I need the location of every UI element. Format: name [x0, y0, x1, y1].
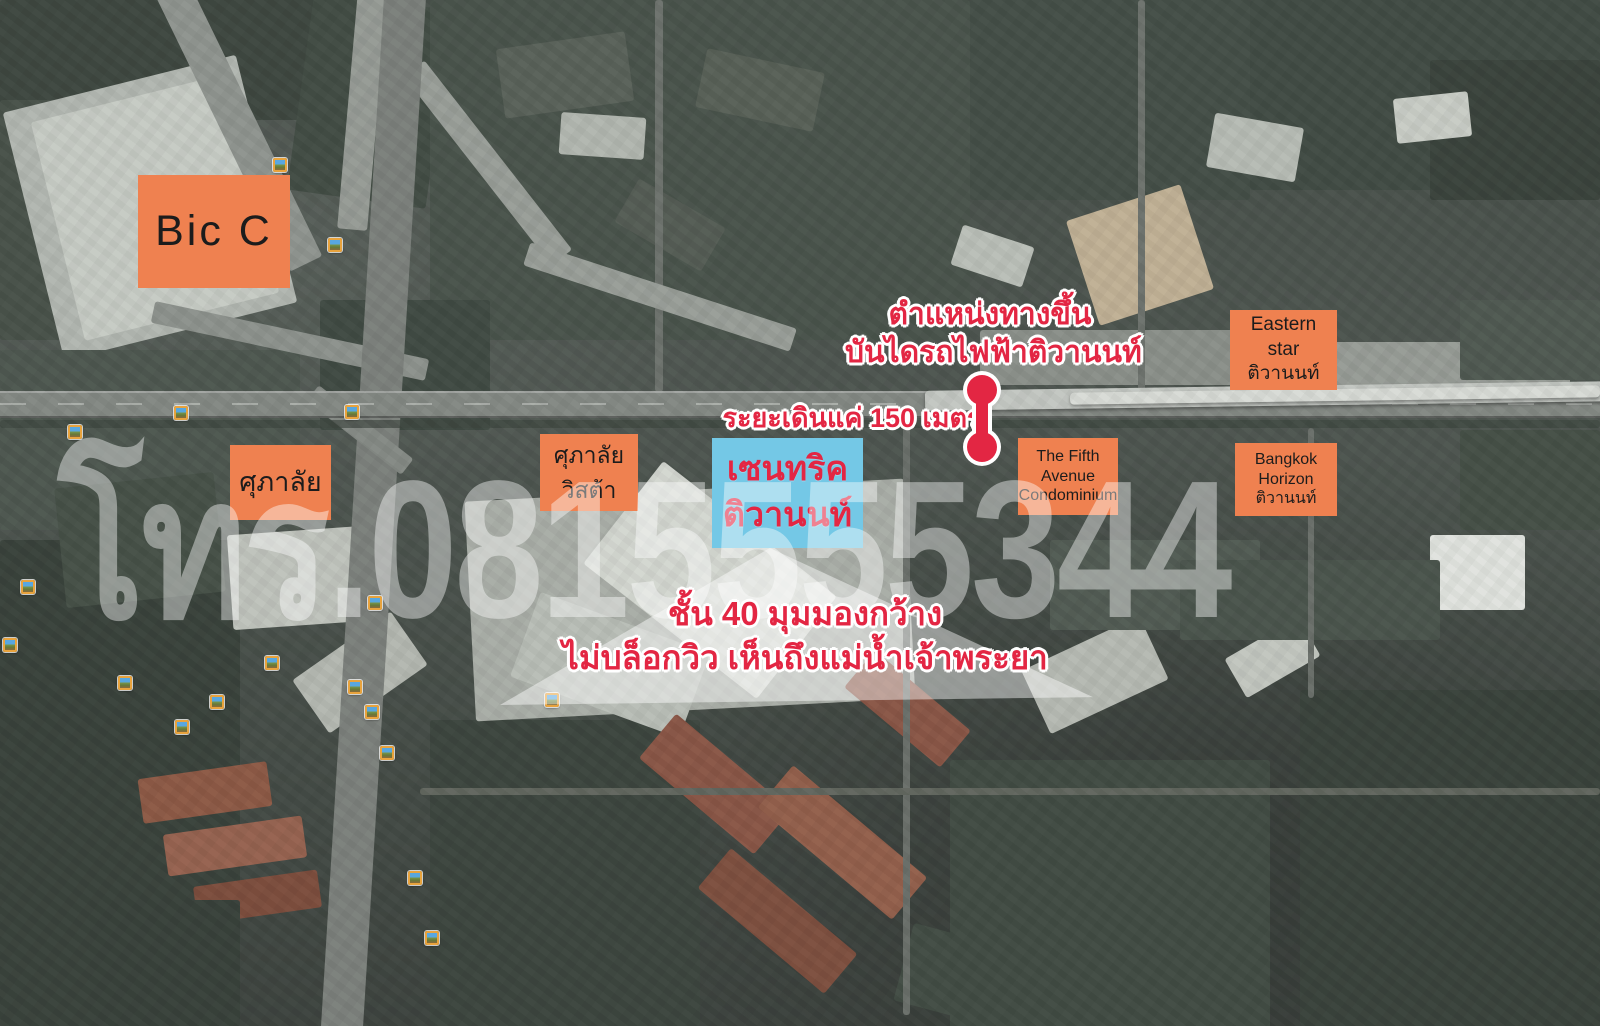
- big-c-label-box: Bic C: [138, 175, 290, 288]
- view-note-line1: ชั้น 40 มุมมองกว้าง: [545, 592, 1065, 636]
- photo-thumbnail-icon: [273, 158, 287, 172]
- eastern-star-line3: ติวานนท์: [1247, 362, 1319, 387]
- walking-distance-note: ระยะเดินแค่ 150 เมตร: [722, 396, 982, 439]
- bangkok-horizon-line2: Horizon: [1258, 470, 1313, 490]
- photo-thumbnail-icon: [21, 580, 35, 594]
- photo-thumbnail-icon: [174, 406, 188, 420]
- photo-thumbnail-icon: [345, 405, 359, 419]
- big-c-label: Bic C: [155, 207, 273, 256]
- photo-thumbnail-icon: [408, 871, 422, 885]
- bangkok-horizon-line1: Bangkok: [1255, 450, 1317, 470]
- bangkok-horizon-line3: ติวานนท์: [1256, 489, 1317, 509]
- eastern-star-line1: Eastern: [1251, 313, 1316, 338]
- view-note: ชั้น 40 มุมมองกว้าง ไม่บล็อกวิว เห็นถึงแ…: [545, 592, 1065, 680]
- station-entrance-line1: ตำแหน่งทางขึ้น: [845, 296, 1135, 334]
- photo-thumbnail-icon: [328, 238, 342, 252]
- view-note-line2: ไม่บล็อกวิว เห็นถึงแม่น้ำเจ้าพระยา: [545, 636, 1065, 680]
- station-location-marker-icon: [963, 371, 1001, 466]
- photo-thumbnail-icon: [3, 638, 17, 652]
- bangkok-horizon-label-box: Bangkok Horizon ติวานนท์: [1235, 443, 1337, 516]
- photo-thumbnail-icon: [348, 680, 362, 694]
- photo-thumbnail-icon: [425, 931, 439, 945]
- photo-thumbnail-icon: [118, 676, 132, 690]
- photo-thumbnail-icon: [210, 695, 224, 709]
- eastern-star-line2: star: [1268, 338, 1300, 363]
- photo-thumbnail-icon: [175, 720, 189, 734]
- station-entrance-note: ตำแหน่งทางขึ้น บันไดรถไฟฟ้าติวานนท์: [845, 296, 1135, 372]
- eastern-star-label-box: Eastern star ติวานนท์: [1230, 310, 1337, 390]
- photo-thumbnail-icon: [380, 746, 394, 760]
- photo-thumbnail-icon: [68, 425, 82, 439]
- photo-thumbnail-icon: [365, 705, 379, 719]
- map-canvas: Bic C ศุภาลัย ศุภาลัย วิสต้า เซนทริค ติว…: [0, 0, 1600, 1026]
- station-entrance-line2: บันไดรถไฟฟ้าติวานนท์: [845, 334, 1135, 372]
